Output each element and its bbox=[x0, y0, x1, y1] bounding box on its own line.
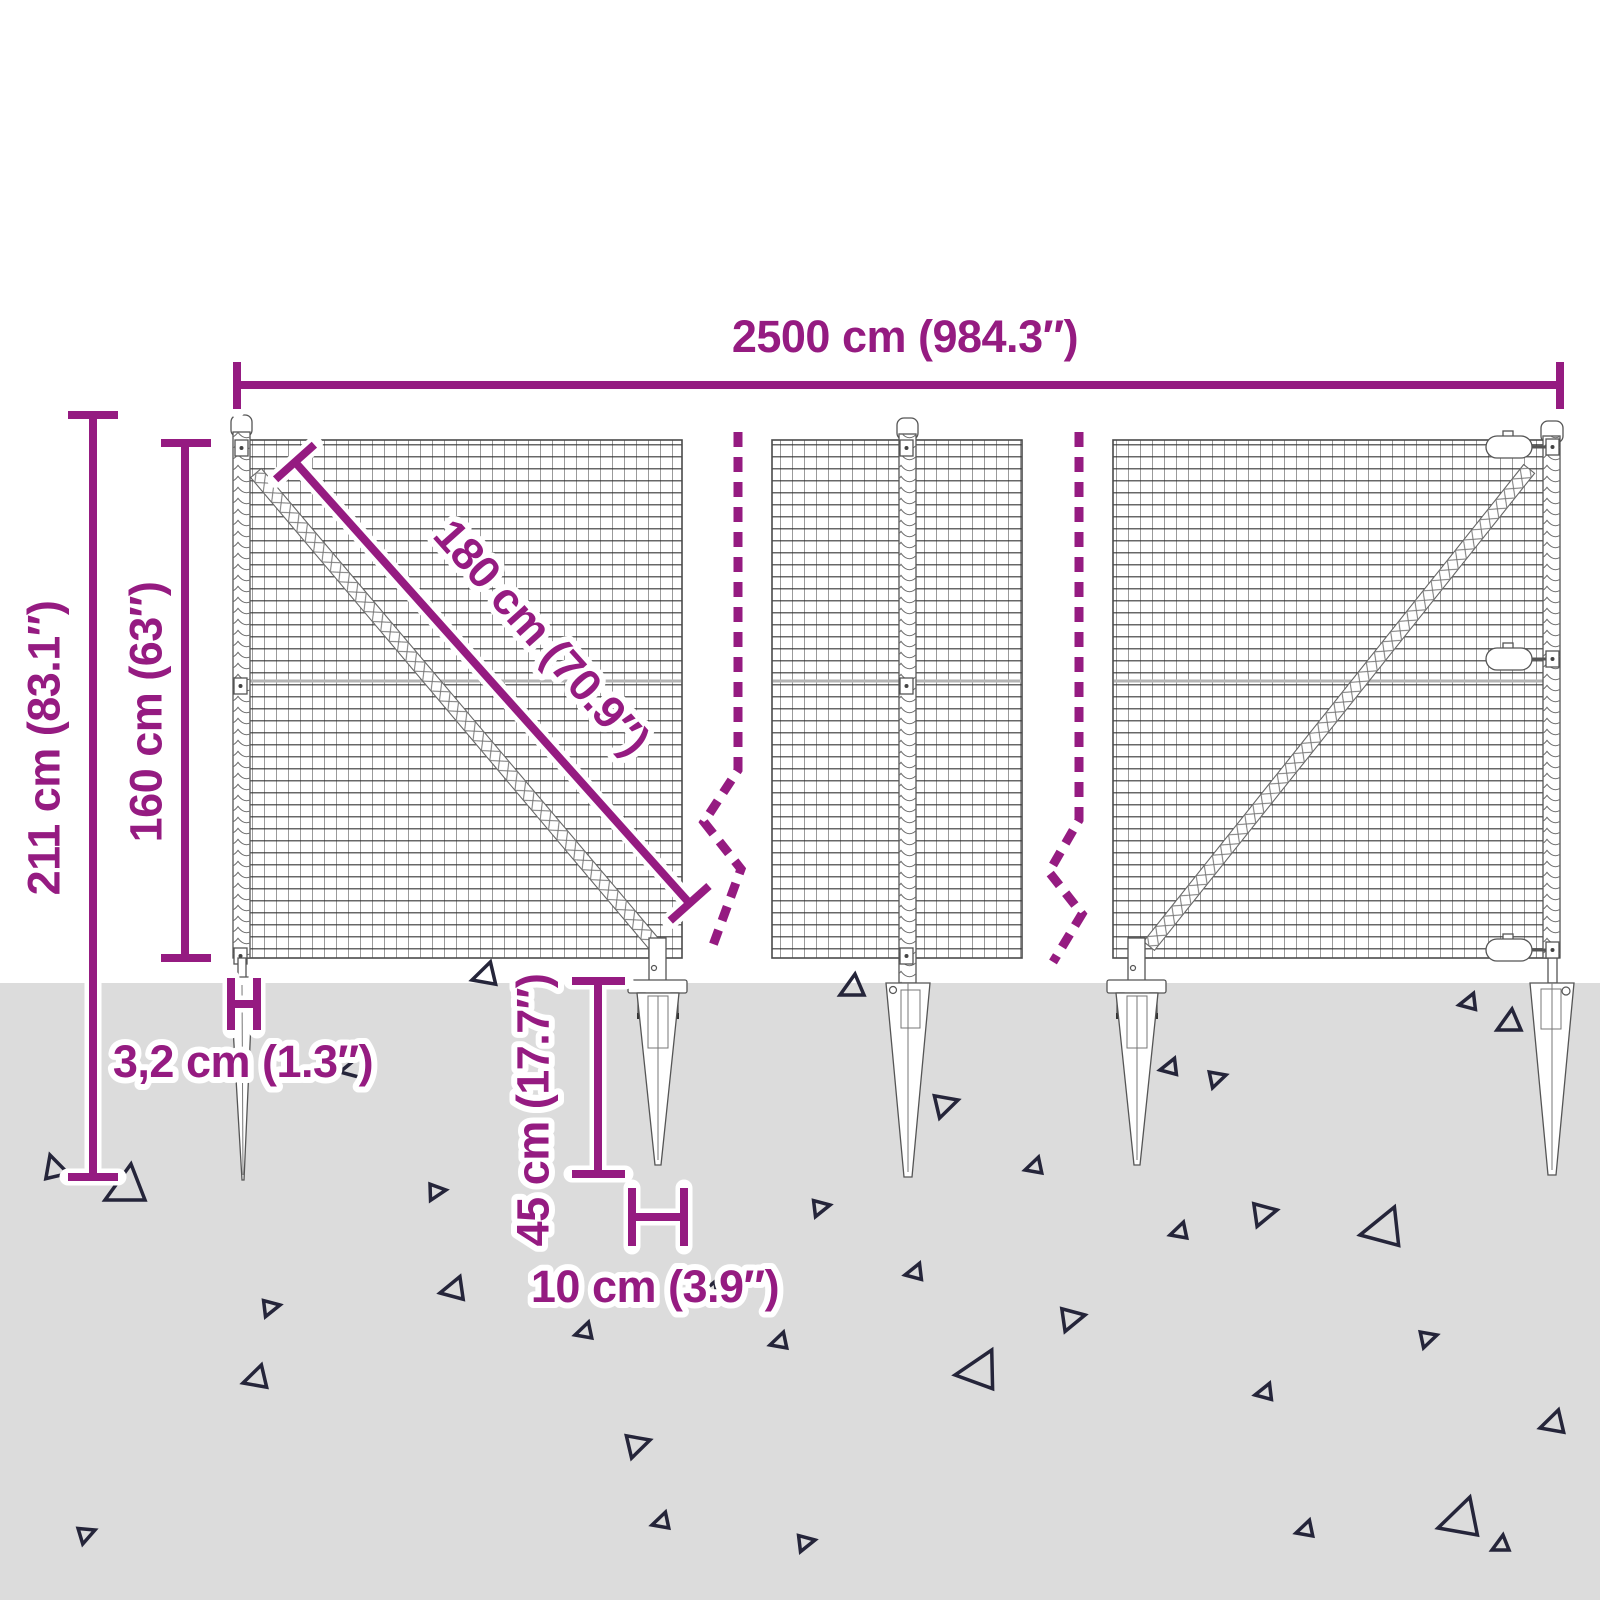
dimension-label-mesh-height: 160 cm (63″) bbox=[121, 582, 172, 843]
dimension-label-total-height: 211 cm (83.1″) bbox=[19, 601, 70, 896]
dimension-mesh-height: 160 cm (63″) bbox=[121, 443, 212, 958]
fence-post-middle bbox=[897, 418, 918, 983]
dimension-label-spike-depth: 45 cm (17.7″) bbox=[508, 974, 559, 1247]
fence-panel-right bbox=[1113, 440, 1548, 958]
break-line-left bbox=[704, 432, 741, 948]
dimension-label-post-width: 3,2 cm (1.3″) bbox=[113, 1036, 373, 1087]
dimension-label-total-width: 2500 cm (984.3″) bbox=[732, 311, 1078, 362]
dimension-label-spike-plate-width: 10 cm (3.9″) bbox=[531, 1261, 779, 1312]
fence-dimension-diagram: 2500 cm (984.3″) 211 cm (83.1″) 160 cm (… bbox=[0, 0, 1600, 1600]
dimension-total-width: 2500 cm (984.3″) bbox=[237, 311, 1560, 409]
break-line-right bbox=[1049, 432, 1082, 962]
fence-panel-middle bbox=[772, 440, 1022, 958]
fence-post-left bbox=[231, 415, 252, 964]
